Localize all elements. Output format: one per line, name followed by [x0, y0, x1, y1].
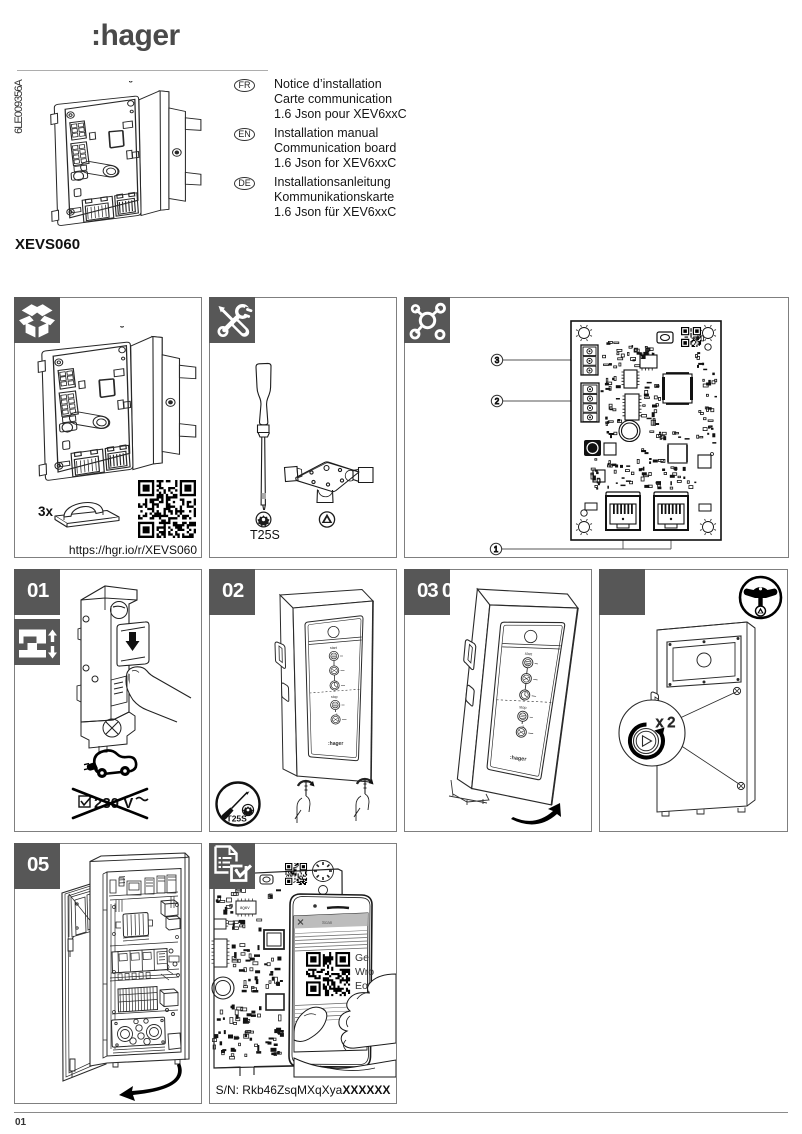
svg-text:x 2: x 2 — [656, 715, 675, 731]
svg-text:3: 3 — [495, 356, 500, 365]
svg-text:Ge: Ge — [355, 952, 369, 964]
svg-text:8Q6V: 8Q6V — [240, 907, 250, 911]
svg-text:2: 2 — [495, 397, 500, 406]
svg-text:Wro: Wro — [355, 966, 374, 978]
svg-text:Scan: Scan — [322, 920, 333, 925]
svg-text:1: 1 — [494, 545, 499, 554]
svg-text:T25S: T25S — [227, 814, 248, 824]
